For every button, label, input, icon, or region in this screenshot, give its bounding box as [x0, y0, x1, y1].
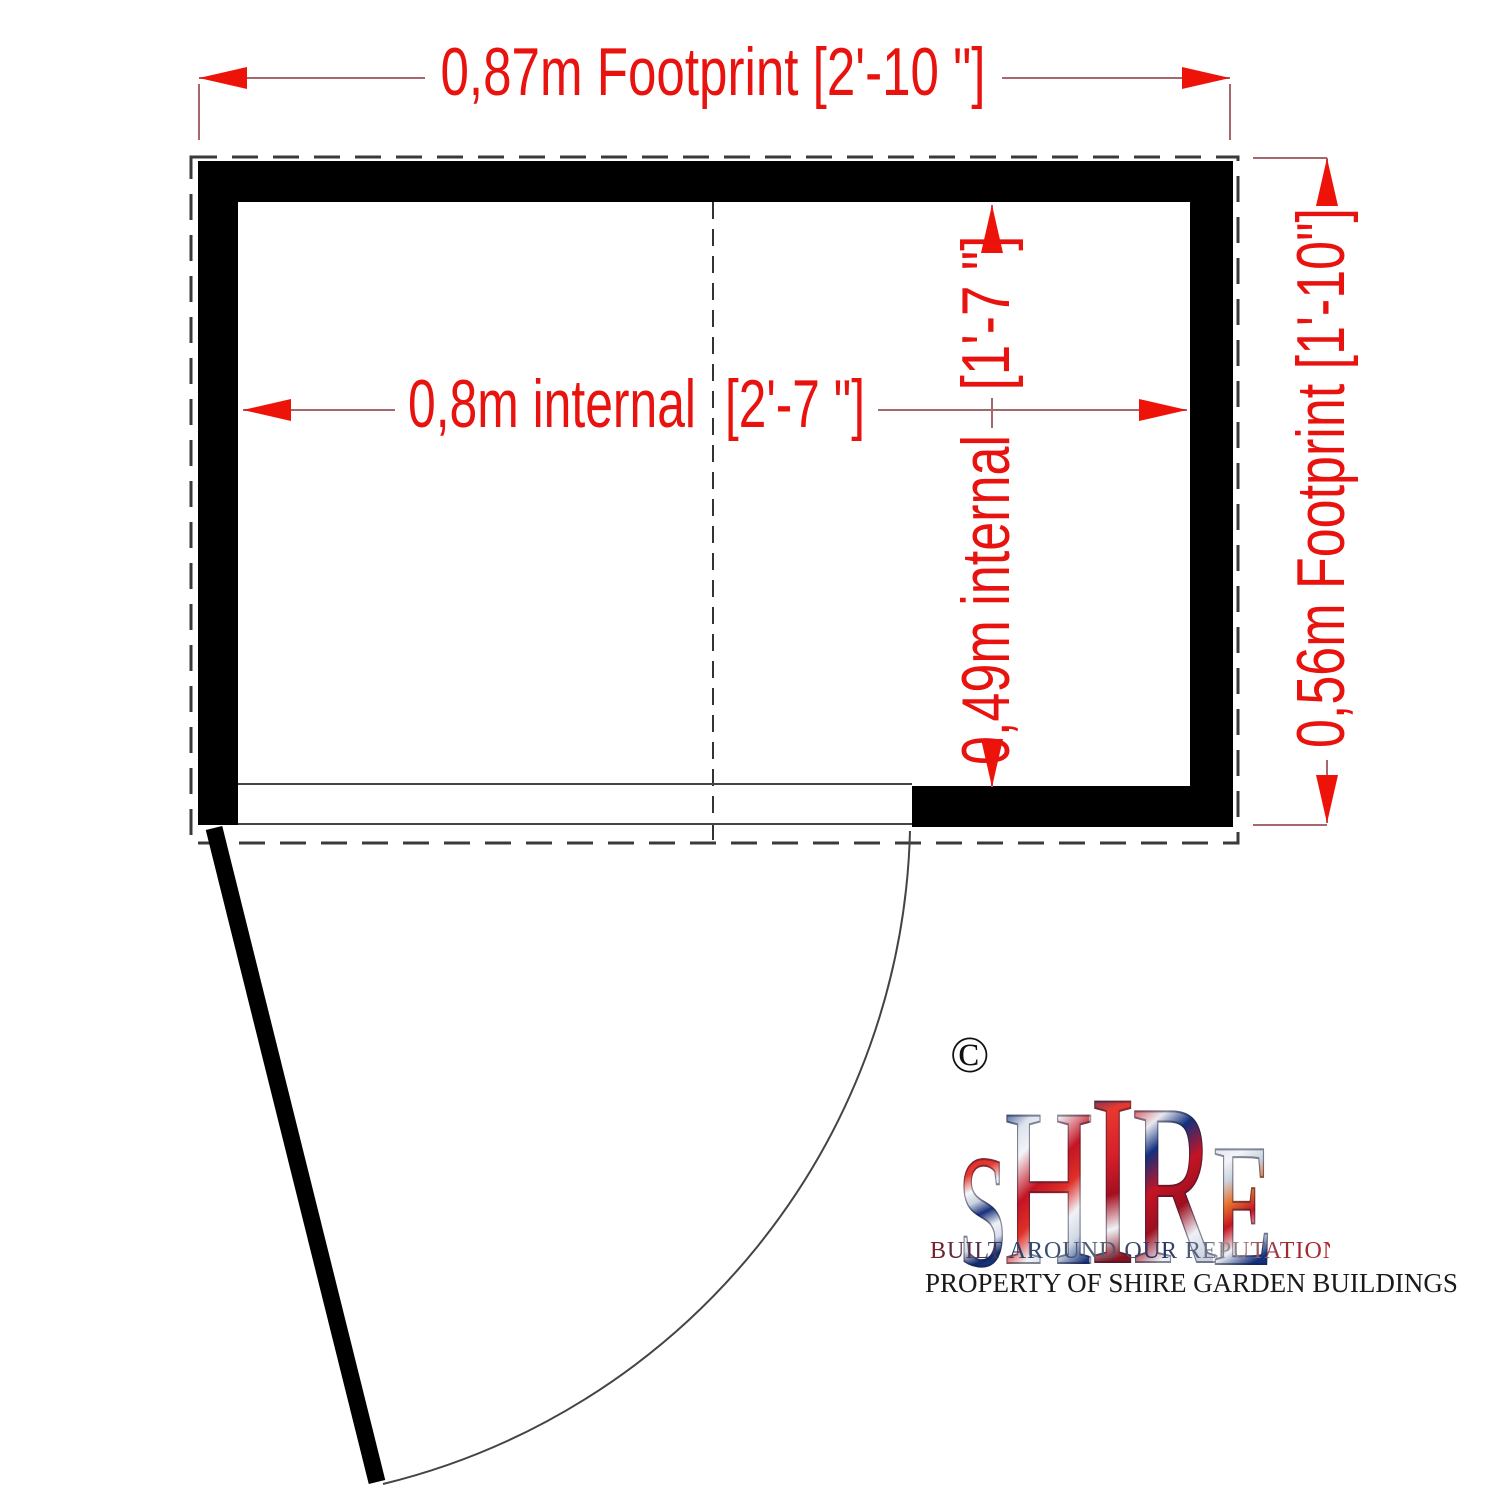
door-threshold: [238, 784, 912, 824]
dimension-footprint-width: 0,87m Footprint [2'-10 "]: [199, 34, 1230, 140]
arrow-right-icon: [1139, 399, 1187, 421]
wall-right: [1190, 161, 1233, 827]
walls: [198, 161, 1233, 827]
arrow-down-icon: [1316, 775, 1338, 823]
wall-left: [198, 161, 238, 825]
shed-floorplan-drawing: 0,87m Footprint [2'-10 "] 0,56m Footprin…: [0, 0, 1500, 1500]
brand-wordmark: S H I R E: [958, 1010, 1294, 1270]
dimension-footprint-depth: 0,56m Footprint [1'-10"]: [1253, 158, 1359, 825]
arrow-left-icon: [199, 67, 247, 89]
internal-depth-imperial-label: [1'-7 "]: [948, 236, 1024, 391]
arrow-right-icon: [1182, 67, 1230, 89]
property-notice: PROPERTY OF SHIRE GARDEN BUILDINGS: [925, 1268, 1335, 1299]
wall-bottom: [912, 786, 1233, 827]
wall-top: [198, 161, 1233, 202]
door-swing-arc: [383, 831, 910, 1484]
arrow-left-icon: [243, 399, 291, 421]
footprint-width-label: 0,87m Footprint [2'-10 "]: [441, 34, 986, 110]
arrow-up-icon: [1316, 158, 1338, 206]
internal-width-metric-label: 0,8m internal: [408, 366, 696, 442]
dimension-internal-depth: [1'-7 "] 0,49m internal: [948, 205, 1024, 787]
footprint-depth-label: 0,56m Footprint [1'-10"]: [1283, 208, 1359, 748]
footprint-outline: [191, 157, 1238, 843]
internal-width-imperial-label: [2'-7 "]: [725, 366, 865, 442]
door-leaf: [214, 828, 377, 1482]
brand-tagline: BUILT AROUND OUR REPUTATION: [930, 1238, 1330, 1265]
internal-depth-metric-label: 0,49m internal: [948, 435, 1024, 765]
dimension-internal-width: 0,8m internal [2'-7 "]: [243, 366, 1187, 442]
